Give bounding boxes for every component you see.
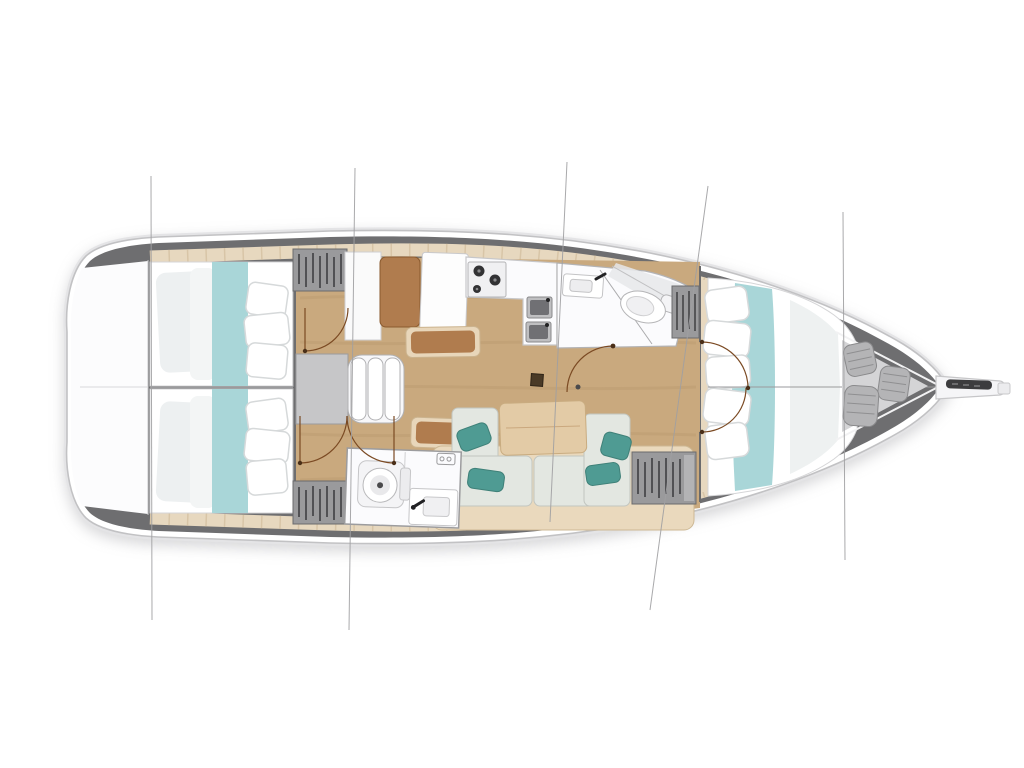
wardrobe-locker-starboard-aft: [293, 481, 347, 524]
mast-step-plate: [531, 374, 544, 387]
aft-toilet-seatback: [400, 468, 411, 500]
floorplan-svg: [0, 0, 1024, 768]
burner-center: [493, 278, 496, 281]
throw-pillow: [467, 468, 505, 493]
sink-faucet: [545, 323, 549, 327]
companionway: [296, 354, 404, 424]
step: [385, 358, 400, 420]
pillow: [702, 387, 752, 426]
head-sink-basin: [570, 279, 593, 293]
pillow: [246, 342, 289, 379]
fender: [877, 365, 911, 403]
berth-runner: [212, 389, 248, 513]
throw-pillow: [585, 462, 621, 487]
wardrobe-locker-forward-head: [672, 286, 699, 338]
step: [351, 358, 366, 420]
aft-sink-basin: [423, 497, 450, 517]
wardrobe-locker-salon: [632, 452, 696, 504]
nav-seat: [345, 252, 381, 340]
locker-panel: [684, 455, 694, 501]
locker-hatch-marks: [299, 253, 341, 288]
berth-runner: [212, 262, 248, 386]
pillow: [702, 320, 751, 359]
door-pivot: [298, 461, 302, 465]
fender-body: [843, 385, 880, 427]
sink-basin: [529, 325, 548, 339]
wardrobe-locker-port-aft: [293, 249, 347, 291]
companionway-engine-box: [296, 354, 348, 424]
pillow: [243, 428, 290, 464]
fender: [842, 340, 878, 378]
aft-head: [345, 448, 462, 528]
door-pivot: [746, 386, 750, 390]
pillow: [246, 458, 289, 495]
locker-hatch-marks: [638, 458, 680, 498]
pillow: [243, 312, 290, 348]
aft-cabin-port: [150, 262, 293, 386]
burner-center: [476, 288, 479, 291]
bowsprit: [936, 376, 1010, 399]
step: [368, 358, 383, 420]
pillow: [705, 355, 751, 390]
bowsprit-tip: [998, 383, 1010, 394]
burner-center: [477, 269, 480, 272]
aft-cabin-starboard: [150, 389, 293, 513]
door-pivot: [611, 344, 616, 349]
pillow: [704, 285, 750, 325]
deck-fitting-dot: [576, 385, 581, 390]
yacht-floorplan-canvas: [0, 0, 1024, 768]
door-pivot: [700, 430, 704, 434]
door-pivot: [303, 349, 307, 353]
sink-basin: [530, 300, 549, 315]
locker-hatch-marks: [299, 486, 341, 521]
sink-faucet: [546, 298, 550, 302]
fender-body: [877, 365, 911, 403]
nav-seat-cushion: [380, 257, 420, 327]
fender: [843, 385, 880, 427]
chart-table: [420, 252, 469, 334]
door-pivot: [700, 340, 704, 344]
door-pivot: [392, 461, 396, 465]
pillow: [704, 422, 750, 461]
salon-bench-cushion: [411, 330, 475, 353]
